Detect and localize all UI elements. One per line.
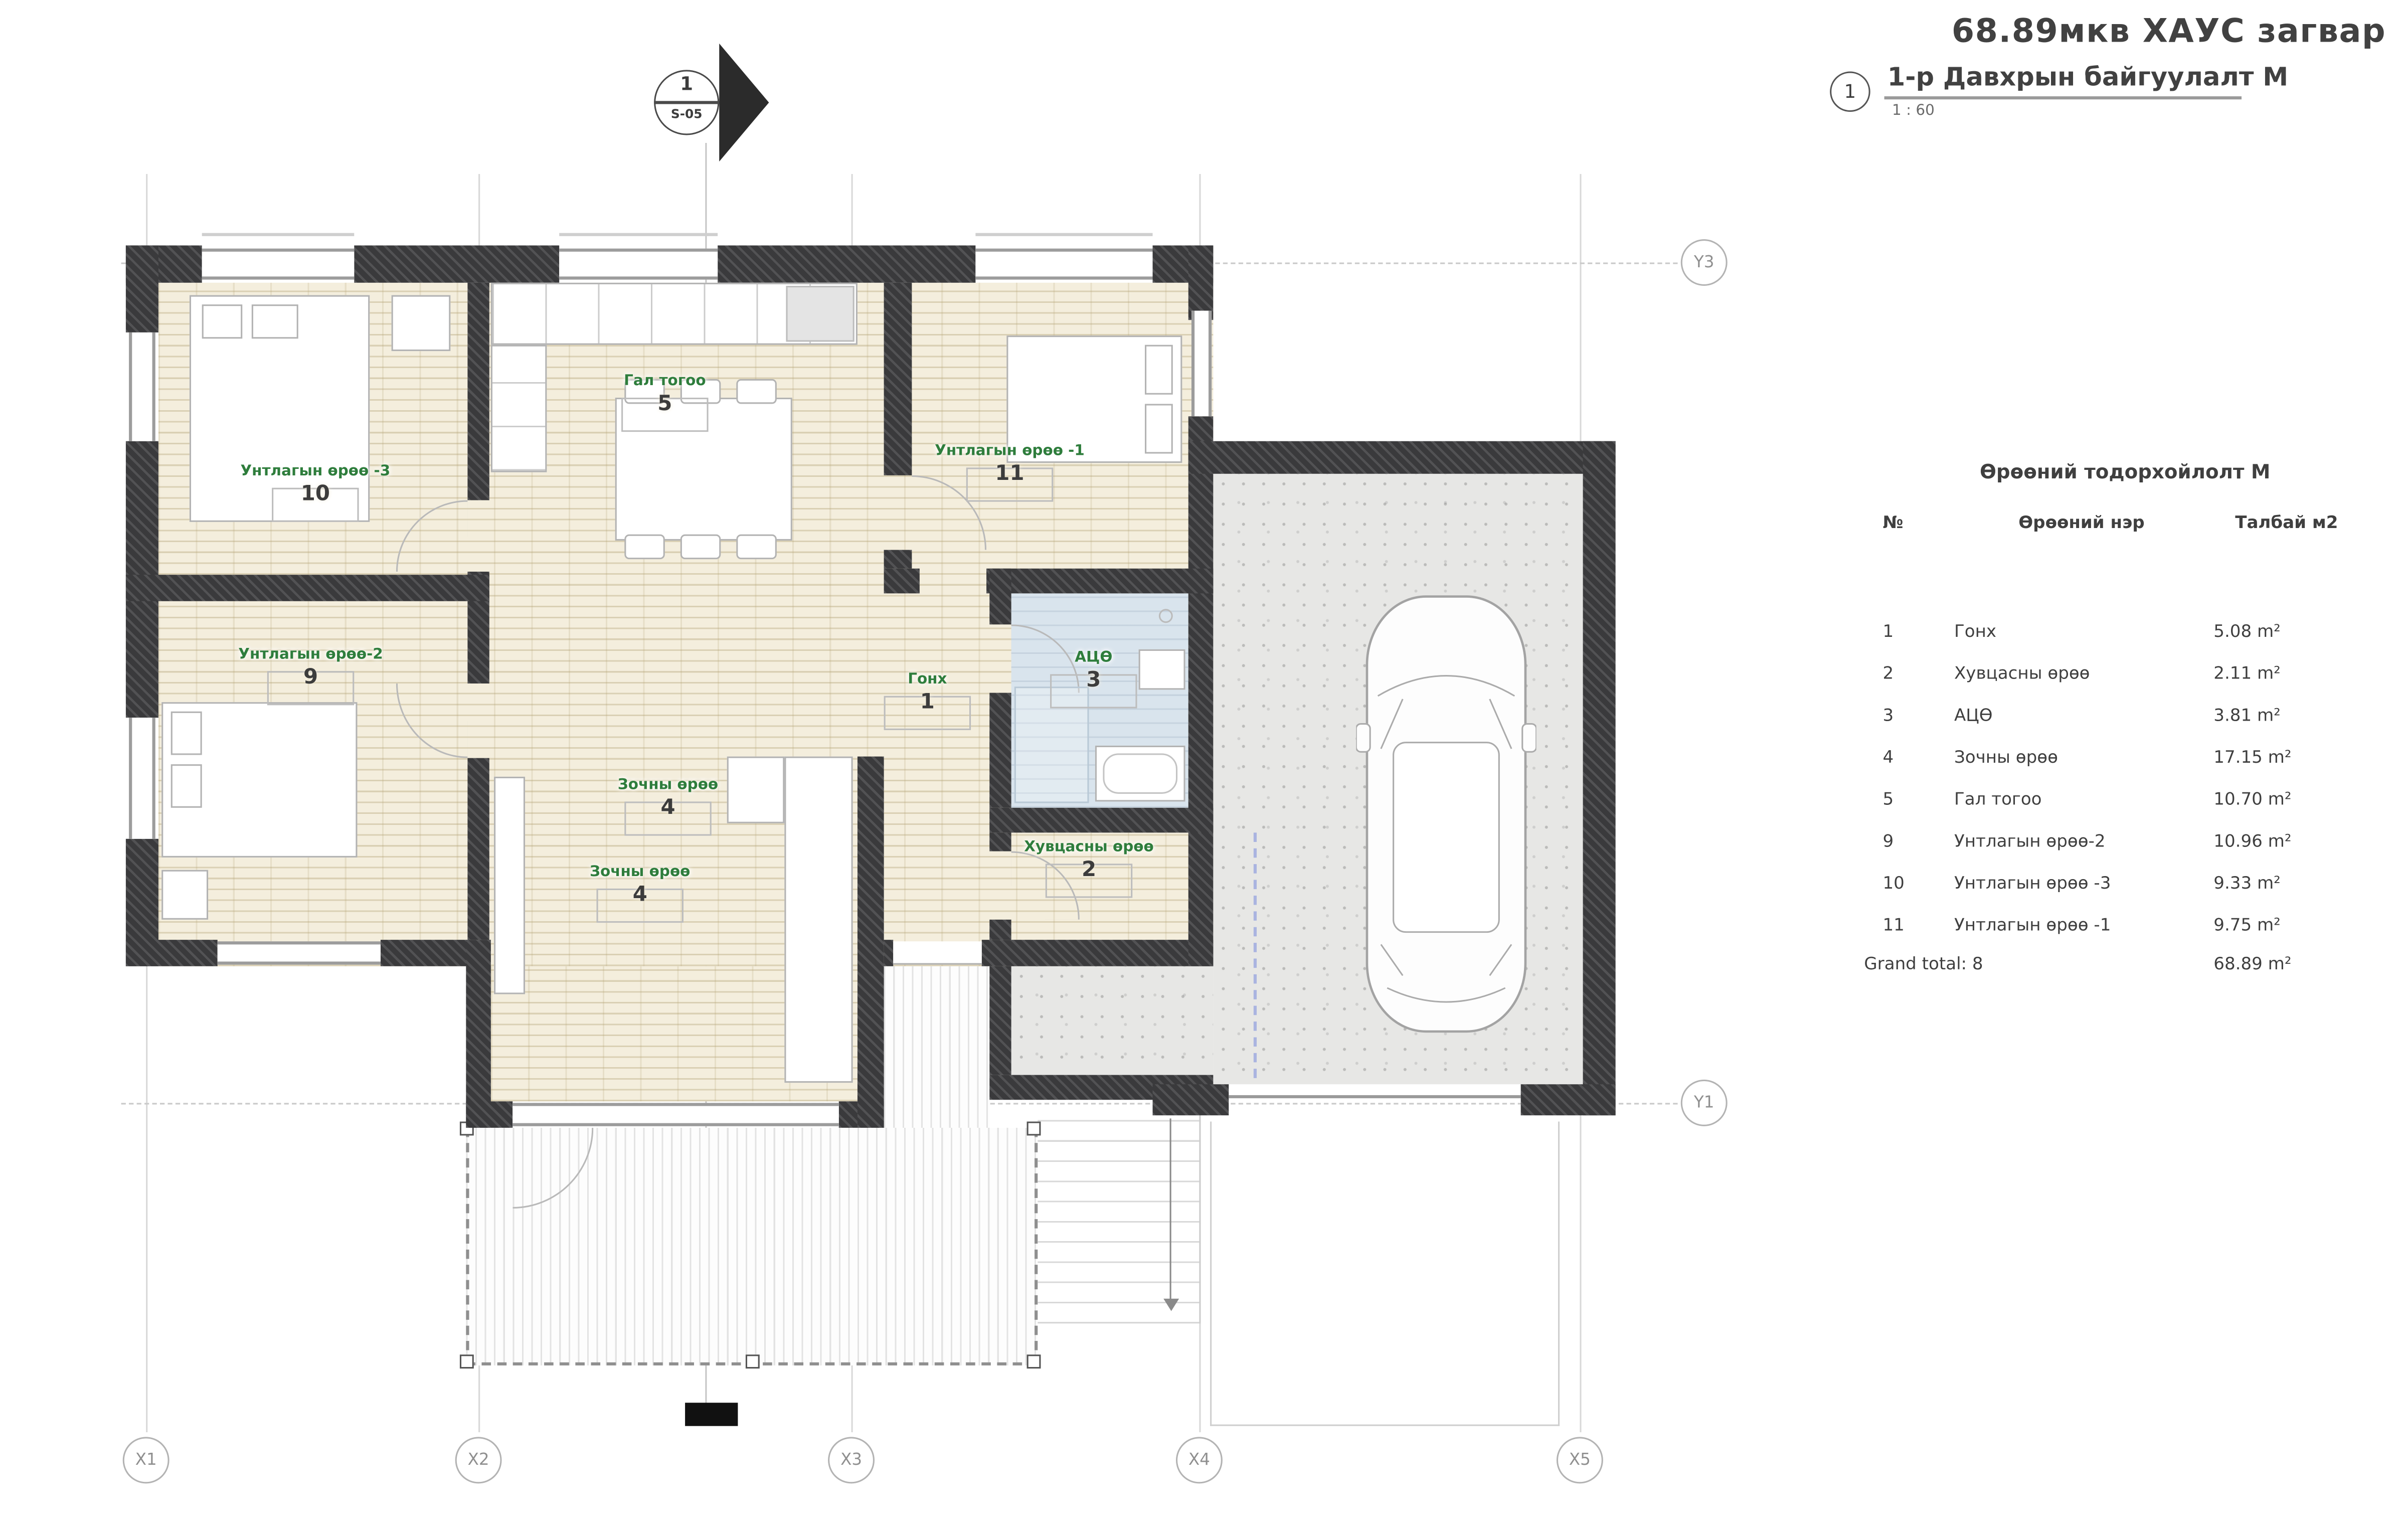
wall-segment (989, 832, 1011, 851)
legend-row-no: 4 (1882, 747, 1894, 767)
grid-bubble-x5: X5 (1557, 1437, 1603, 1483)
room-label: АЦӨ (1075, 649, 1112, 666)
ceiling-light (1159, 609, 1173, 623)
wall-segment (381, 940, 467, 966)
legend-row-name: Унтлагын өрөө -3 (1954, 873, 2111, 893)
wall-segment (466, 940, 491, 1128)
window (1191, 311, 1212, 417)
section-marker-line (654, 101, 719, 103)
wall-segment (1153, 1084, 1229, 1115)
wall-segment (989, 693, 1011, 808)
room-number: 5 (657, 392, 672, 417)
legend-row-name: Зочны өрөө (1954, 747, 2058, 767)
wall-segment (467, 283, 489, 500)
view-title: 1-р Давхрын байгуулалт М (1888, 62, 2288, 92)
room-number: 2 (1082, 858, 1096, 883)
wall-segment (982, 940, 1214, 966)
view-title-underline (1884, 96, 2242, 99)
wall-segment (126, 940, 218, 966)
legend-row-area: 9.75 m² (2213, 915, 2281, 935)
patio-outline (1558, 1122, 1560, 1426)
garage-door-line (1229, 1095, 1520, 1098)
legend-col-area: Талбай м2 (2193, 512, 2380, 533)
window-sill-line (202, 233, 355, 236)
legend-col-name: Өрөөний нэр (1957, 512, 2206, 533)
grid-bubble-x2: X2 (455, 1437, 502, 1483)
legend-row-name: Хувцасны өрөө (1954, 663, 2090, 683)
patio-outline (1210, 1122, 1212, 1426)
room-label: Гонх (908, 671, 947, 688)
legend-row-no: 5 (1882, 789, 1894, 809)
room-label: Унтлагын өрөө -1 (935, 443, 1085, 460)
room-number: 4 (660, 795, 675, 820)
tv-console (494, 777, 525, 994)
wall-segment (858, 757, 884, 1128)
wall-segment (884, 569, 920, 594)
legend-title: Өрөөний тодорхойлолт М (1864, 460, 2386, 483)
sheet-title: 68.89мкв ХАУС загвар (1554, 13, 2386, 50)
wall-segment (1188, 441, 1616, 474)
legend-row-area: 10.70 m² (2213, 789, 2291, 809)
wall-segment (1188, 245, 1214, 320)
wall-segment (1583, 441, 1616, 1115)
room-label: Хувцасны өрөө (1024, 839, 1154, 856)
pillow (1145, 404, 1173, 453)
bathtub-inner (1103, 753, 1177, 794)
grid-bubble-x4: X4 (1176, 1437, 1223, 1483)
exit-door-opening (893, 941, 982, 964)
wall-segment (989, 966, 1011, 1075)
floor-plan-sheet: DN (0, 0, 2400, 1539)
legend-col-no: № (1882, 512, 1903, 533)
kitchen-counter (491, 345, 547, 472)
deck-post (746, 1354, 760, 1368)
legend-row-area: 9.33 m² (2213, 873, 2281, 893)
wall-segment (466, 1101, 512, 1128)
patio-door (512, 1103, 839, 1126)
kitchen-appliance (786, 286, 854, 342)
wall-segment (986, 569, 1213, 594)
legend-row-area: 17.15 m² (2213, 747, 2291, 767)
wall-segment (989, 808, 1213, 833)
window-sill-line (559, 233, 718, 236)
window (202, 249, 355, 280)
room-label: Гал тогоо (624, 373, 706, 390)
chair (736, 379, 777, 404)
pillow (1145, 345, 1173, 395)
wall-segment (718, 245, 975, 282)
garage-marking-line (1254, 832, 1257, 1078)
legend-row-no: 1 (1882, 621, 1894, 641)
room-number: 9 (303, 665, 318, 690)
room-number: 3 (1086, 668, 1101, 693)
room-label: Зочны өрөө (618, 777, 718, 794)
window (129, 718, 155, 839)
room-number: 11 (995, 461, 1024, 486)
legend-row-no: 9 (1882, 831, 1894, 851)
window (559, 249, 718, 280)
sofa (727, 757, 785, 823)
pillow (171, 712, 202, 755)
legend-row-name: Унтлагын өрөө -1 (1954, 915, 2111, 935)
wall-segment (989, 920, 1011, 940)
room-label: Унтлагын өрөө -3 (240, 463, 390, 480)
legend-row-name: Унтлагын өрөө-2 (1954, 831, 2106, 851)
legend-row-name: АЦӨ (1954, 705, 1993, 725)
wall-segment (467, 758, 489, 940)
deck-post (460, 1354, 474, 1368)
legend-row-name: Гонх (1954, 621, 1996, 641)
car-top-view (1356, 587, 1536, 1041)
legend-row-no: 11 (1882, 915, 1904, 935)
legend-total-area: 68.89 m² (2213, 954, 2291, 974)
wall-segment (126, 245, 158, 332)
wall-segment (1188, 416, 1214, 966)
window-sill-line (975, 233, 1152, 236)
section-end-marker (685, 1403, 738, 1426)
wall-segment (126, 575, 489, 601)
nightstand (392, 295, 451, 352)
grid-bubble-x1: X1 (123, 1437, 169, 1483)
section-marker-number: 1 (654, 73, 719, 95)
legend-row-no: 2 (1882, 663, 1894, 683)
section-marker-sheet: S-05 (654, 107, 719, 121)
room-number: 1 (920, 690, 935, 715)
grid-bubble-y1: Y1 (1681, 1080, 1728, 1126)
chair (736, 535, 777, 560)
room-number: 4 (633, 883, 647, 908)
window (975, 249, 1152, 280)
deck-rail (466, 1128, 469, 1365)
pillow (171, 764, 202, 808)
room-number: 10 (301, 481, 330, 506)
pillow (252, 304, 298, 338)
chair (624, 535, 665, 560)
deck-post (1027, 1354, 1041, 1368)
pillow (202, 304, 243, 338)
legend-row-area: 2.11 m² (2213, 663, 2281, 683)
legend-row-area: 10.96 m² (2213, 831, 2291, 851)
wall-segment (354, 245, 559, 282)
grid-bubble-y3: Y3 (1681, 239, 1728, 286)
view-scale: 1 : 60 (1892, 102, 1935, 119)
room-label: Зочны өрөө (590, 864, 690, 881)
exterior-stairs (1038, 1115, 1201, 1323)
wall-segment (1521, 1084, 1616, 1115)
bathroom-sink (1139, 649, 1185, 690)
wall-segment (884, 283, 912, 475)
window (218, 941, 381, 964)
legend-row-no: 10 (1882, 873, 1904, 893)
floor-entry-landing (1011, 966, 1214, 1084)
nightstand (161, 870, 208, 920)
patio-outline (1210, 1425, 1560, 1426)
legend-total-label: Grand total: 8 (1864, 954, 1983, 974)
stairs-arrow (1170, 1118, 1171, 1302)
stairs-arrowhead (1163, 1299, 1179, 1311)
legend-row-no: 3 (1882, 705, 1894, 725)
legend-row-area: 5.08 m² (2213, 621, 2281, 641)
sofa (784, 757, 852, 1083)
legend-row-area: 3.81 m² (2213, 705, 2281, 725)
window (129, 332, 155, 441)
wall-segment (989, 569, 1011, 625)
wall-segment (884, 550, 912, 569)
legend-row-name: Гал тогоо (1954, 789, 2042, 809)
grid-bubble-x3: X3 (828, 1437, 875, 1483)
room-label: Унтлагын өрөө-2 (238, 646, 383, 663)
wall-segment (884, 940, 894, 966)
chair (680, 535, 721, 560)
section-arrow (719, 44, 769, 161)
deck-walkway (884, 966, 990, 1128)
view-number-bubble: 1 (1830, 71, 1870, 112)
